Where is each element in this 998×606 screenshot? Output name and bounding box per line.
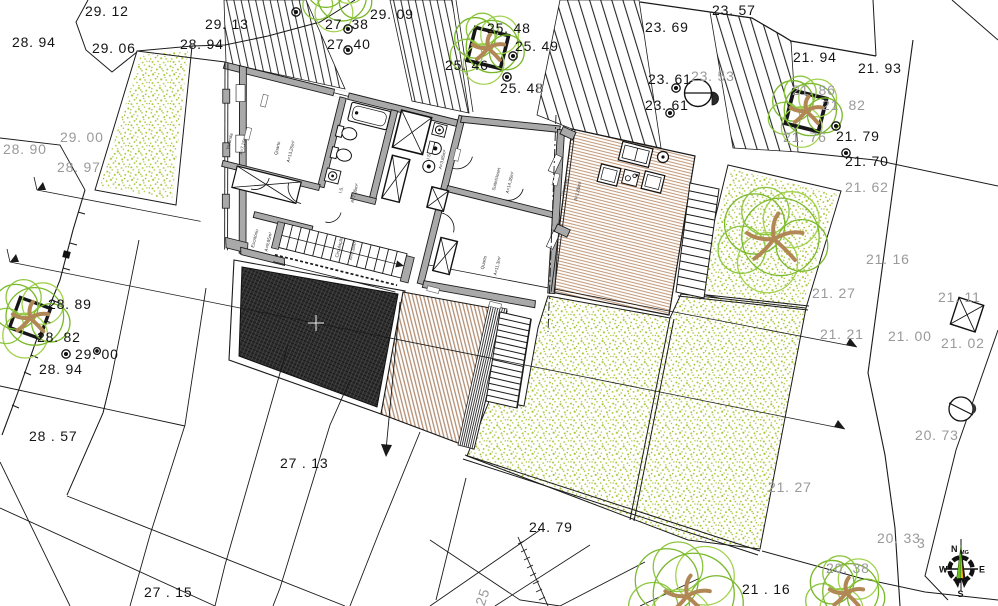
- svg-text:25. 48: 25. 48: [487, 20, 531, 36]
- svg-text:21 . 16: 21 . 16: [742, 581, 790, 597]
- svg-text:27 . 15: 27 . 15: [144, 584, 192, 600]
- svg-text:21. 70: 21. 70: [845, 153, 889, 169]
- svg-text:28. 90: 28. 90: [3, 141, 47, 157]
- svg-text:28. 89: 28. 89: [48, 296, 92, 312]
- svg-text:28. 94: 28. 94: [39, 361, 83, 377]
- svg-text:E: E: [979, 565, 985, 575]
- svg-text:24. 79: 24. 79: [529, 519, 573, 535]
- svg-text:25. 49: 25. 49: [515, 38, 559, 54]
- svg-text:21. 02: 21. 02: [941, 335, 985, 351]
- svg-text:21. 27: 21. 27: [812, 285, 856, 301]
- svg-text:21. 21: 21. 21: [820, 326, 864, 342]
- svg-text:27. 38: 27. 38: [325, 16, 369, 32]
- svg-text:29. 09: 29. 09: [370, 6, 414, 22]
- svg-text:28 . 57: 28 . 57: [29, 428, 77, 444]
- svg-text:21. 16: 21. 16: [866, 251, 910, 267]
- svg-text:21. 94: 21. 94: [793, 49, 837, 65]
- svg-text:8: 8: [536, 80, 545, 96]
- svg-text:29. 12: 29. 12: [85, 3, 129, 19]
- svg-text:28. 94: 28. 94: [180, 36, 224, 52]
- svg-text:29. 00: 29. 00: [75, 346, 119, 362]
- svg-text:21. 11: 21. 11: [938, 289, 981, 305]
- svg-text:20. 73: 20. 73: [915, 427, 959, 443]
- svg-text:23. 61: 23. 61: [645, 97, 689, 113]
- svg-text:21. 93: 21. 93: [858, 60, 902, 76]
- svg-text:W: W: [939, 565, 948, 575]
- svg-text:21. 62: 21. 62: [845, 179, 889, 195]
- svg-text:S: S: [958, 589, 964, 599]
- svg-text:27 . 13: 27 . 13: [280, 455, 328, 471]
- svg-text:28. 97: 28. 97: [57, 159, 101, 175]
- svg-text:29. 00: 29. 00: [60, 129, 104, 145]
- svg-text:20. 38: 20. 38: [826, 560, 870, 576]
- svg-text:20. 33: 20. 33: [877, 530, 921, 546]
- svg-text:21. 79: 21. 79: [836, 128, 880, 144]
- svg-text:N: N: [951, 544, 958, 554]
- svg-text:29. 13: 29. 13: [205, 16, 249, 32]
- svg-text:23. 69: 23. 69: [645, 19, 689, 35]
- svg-text:MG: MG: [960, 550, 969, 556]
- svg-text:21. 27: 21. 27: [768, 479, 812, 495]
- svg-text:21. 00: 21. 00: [888, 328, 932, 344]
- svg-text:29. 06: 29. 06: [92, 40, 136, 56]
- svg-text:3: 3: [917, 535, 926, 551]
- svg-text:28. 94: 28. 94: [12, 34, 56, 50]
- svg-text:21. 86: 21. 86: [792, 82, 836, 98]
- svg-text:28. 82: 28. 82: [37, 329, 81, 345]
- svg-text:23. 57: 23. 57: [712, 2, 756, 18]
- svg-text:21. 76: 21. 76: [783, 129, 827, 145]
- svg-text:21. 82: 21. 82: [822, 97, 866, 113]
- svg-text:23. 53: 23. 53: [691, 68, 735, 84]
- svg-text:25. 46: 25. 46: [445, 57, 489, 73]
- svg-text:23. 61: 23. 61: [648, 71, 692, 87]
- svg-text:27. 40: 27. 40: [327, 36, 371, 52]
